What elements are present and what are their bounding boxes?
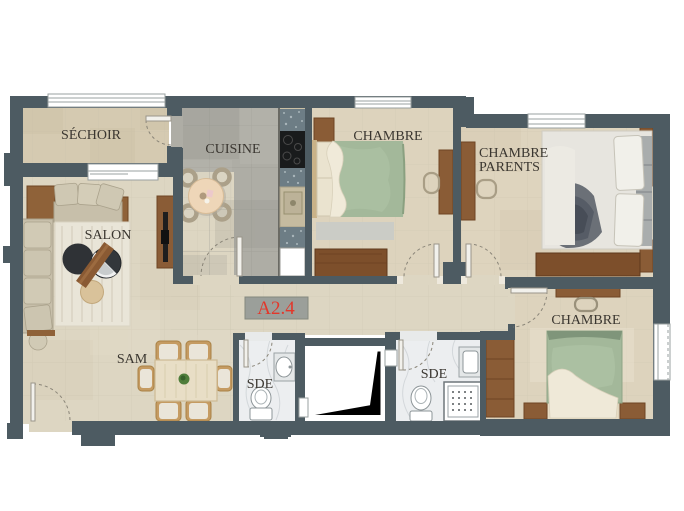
svg-text:PARENTS: PARENTS [479, 160, 540, 175]
svg-text:CHAMBRE: CHAMBRE [551, 313, 620, 328]
svg-text:CHAMBRE: CHAMBRE [353, 129, 422, 144]
svg-text:SAM: SAM [117, 352, 148, 367]
svg-text:SDE: SDE [421, 367, 447, 382]
svg-text:CUISINE: CUISINE [205, 142, 260, 157]
svg-text:SDE: SDE [247, 377, 273, 392]
svg-text:A2.4: A2.4 [257, 298, 295, 319]
svg-text:SÉCHOIR: SÉCHOIR [61, 126, 122, 143]
svg-text:CHAMBRE: CHAMBRE [479, 146, 548, 161]
svg-text:SALON: SALON [85, 228, 132, 243]
